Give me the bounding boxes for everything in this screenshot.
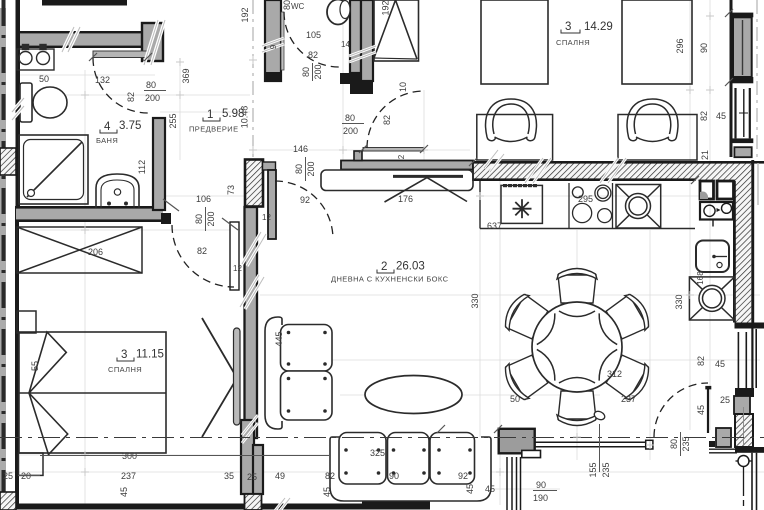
svg-text:9: 9 (269, 44, 278, 49)
svg-text:200: 200 (313, 64, 323, 79)
svg-text:45: 45 (485, 484, 495, 494)
svg-text:90: 90 (536, 480, 546, 490)
svg-text:49: 49 (275, 471, 285, 481)
svg-text:112: 112 (137, 160, 147, 174)
svg-text:200: 200 (206, 211, 216, 226)
svg-text:73: 73 (226, 185, 236, 195)
svg-text:82: 82 (696, 356, 706, 366)
svg-text:2: 2 (397, 154, 406, 159)
svg-text:50: 50 (39, 74, 49, 84)
svg-text:82: 82 (126, 92, 136, 102)
svg-text:21: 21 (700, 150, 710, 160)
svg-text:325: 325 (370, 448, 385, 458)
svg-text:25: 25 (247, 472, 257, 482)
svg-text:14.29: 14.29 (584, 21, 613, 33)
svg-text:10: 10 (398, 82, 408, 92)
svg-text:25: 25 (3, 471, 13, 481)
svg-text:80: 80 (345, 113, 355, 123)
svg-text:45: 45 (119, 487, 129, 497)
svg-text:СПАЛНЯ: СПАЛНЯ (556, 38, 590, 47)
svg-text:146: 146 (293, 144, 308, 154)
svg-text:55: 55 (30, 361, 40, 371)
svg-text:45: 45 (465, 484, 475, 494)
svg-text:237: 237 (121, 471, 136, 481)
svg-text:3: 3 (565, 21, 571, 33)
svg-text:82: 82 (382, 115, 392, 125)
svg-text:СПАЛНЯ: СПАЛНЯ (108, 365, 142, 374)
svg-text:192: 192 (240, 7, 250, 22)
svg-text:168: 168 (696, 271, 705, 285)
svg-text:445: 445 (274, 331, 284, 346)
svg-text:106: 106 (196, 194, 211, 204)
svg-text:235: 235 (601, 462, 611, 477)
svg-text:3: 3 (121, 349, 127, 361)
svg-text:80: 80 (194, 214, 204, 224)
svg-text:105: 105 (306, 30, 321, 40)
svg-text:26.03: 26.03 (396, 261, 425, 273)
svg-text:92: 92 (458, 471, 468, 481)
svg-text:80: 80 (146, 80, 156, 90)
svg-text:14: 14 (341, 40, 350, 49)
svg-text:190: 190 (533, 493, 548, 503)
svg-text:637: 637 (487, 221, 502, 231)
svg-text:1: 1 (207, 109, 213, 121)
svg-text:82: 82 (699, 111, 709, 121)
svg-text:10.48: 10.48 (240, 106, 250, 129)
svg-text:90: 90 (699, 43, 709, 53)
svg-text:80: 80 (294, 164, 304, 174)
svg-text:45: 45 (696, 405, 706, 415)
svg-text:312: 312 (607, 369, 622, 379)
svg-text:92: 92 (300, 195, 310, 205)
svg-text:206: 206 (88, 247, 103, 257)
svg-text:4: 4 (104, 121, 111, 133)
svg-text:296: 296 (675, 38, 685, 53)
svg-text:82: 82 (197, 246, 207, 256)
svg-text:12: 12 (233, 264, 242, 273)
svg-text:45: 45 (716, 111, 726, 121)
svg-text:237: 237 (621, 394, 636, 404)
svg-text:25: 25 (720, 395, 730, 405)
svg-text:330: 330 (674, 294, 684, 309)
svg-text:WC: WC (291, 2, 305, 11)
svg-text:ПРЕДВЕРИЕ: ПРЕДВЕРИЕ (189, 125, 238, 134)
svg-text:80: 80 (669, 439, 679, 449)
svg-text:200: 200 (145, 93, 160, 103)
svg-text:ДНЕВНА С КУХНЕНСКИ БОКС: ДНЕВНА С КУХНЕНСКИ БОКС (331, 275, 449, 284)
svg-text:200: 200 (306, 161, 316, 176)
svg-text:82: 82 (325, 471, 335, 481)
svg-text:11.15: 11.15 (136, 349, 164, 361)
svg-text:176: 176 (398, 194, 413, 204)
svg-text:80: 80 (301, 67, 311, 77)
svg-text:82: 82 (308, 50, 318, 60)
svg-text:12: 12 (262, 213, 271, 222)
svg-text:330: 330 (470, 293, 480, 308)
svg-text:50: 50 (510, 394, 520, 404)
svg-text:БАНЯ: БАНЯ (96, 136, 118, 145)
svg-text:90: 90 (389, 471, 399, 481)
svg-text:45: 45 (322, 487, 332, 497)
svg-text:3.75: 3.75 (119, 120, 141, 132)
svg-text:45: 45 (715, 359, 725, 369)
svg-text:255: 255 (168, 113, 178, 128)
svg-text:369: 369 (181, 68, 191, 83)
svg-text:35: 35 (224, 471, 234, 481)
svg-text:200: 200 (343, 126, 358, 136)
svg-text:295: 295 (578, 194, 593, 204)
svg-text:235: 235 (681, 436, 691, 451)
svg-text:132: 132 (95, 75, 110, 85)
svg-text:155: 155 (588, 462, 598, 477)
svg-text:2: 2 (381, 261, 387, 273)
svg-text:192: 192 (381, 0, 391, 15)
